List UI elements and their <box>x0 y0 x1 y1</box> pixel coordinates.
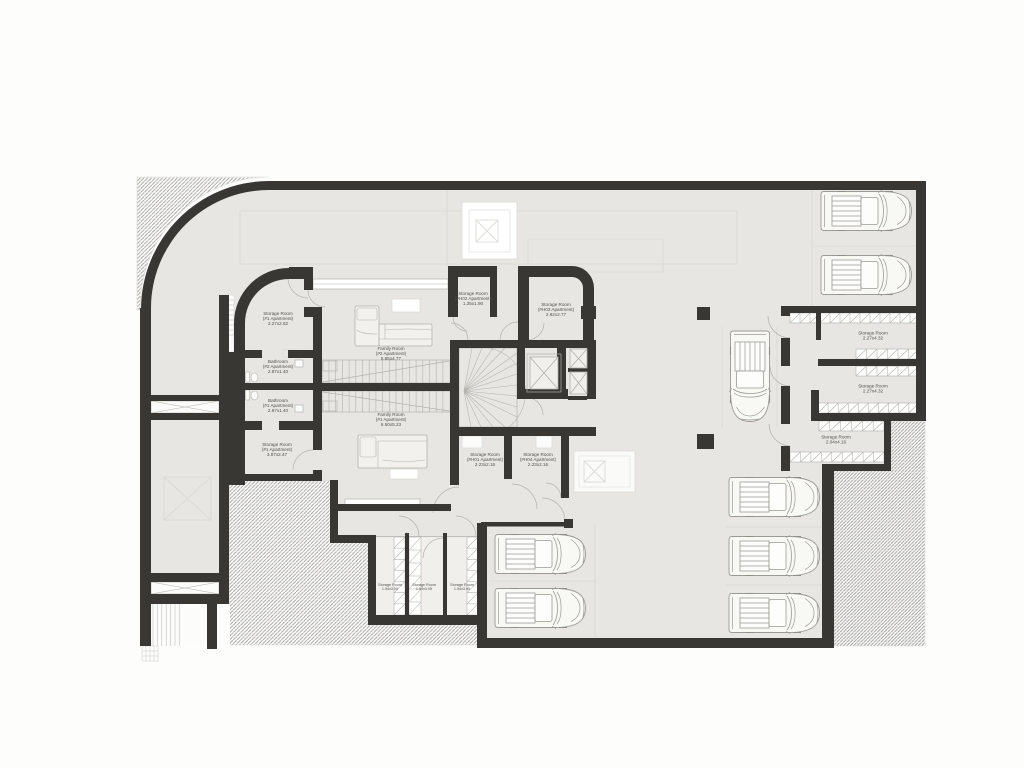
svg-text:2.23x2.16: 2.23x2.16 <box>475 462 496 467</box>
svg-text:2.27x4.32: 2.27x4.32 <box>863 388 884 393</box>
svg-text:3.27x2.62: 3.27x2.62 <box>268 321 289 326</box>
svg-text:2.04x4.16: 2.04x4.16 <box>826 439 847 444</box>
svg-text:3.87x2.47: 3.87x2.47 <box>267 452 288 457</box>
svg-text:2.82x2.77: 2.82x2.77 <box>546 312 567 317</box>
svg-text:2.23x2.16: 2.23x2.16 <box>528 462 549 467</box>
svg-text:2.87x1.40: 2.87x1.40 <box>268 408 289 413</box>
svg-text:2.27x4.32: 2.27x4.32 <box>863 335 884 340</box>
svg-text:6.50x5.23: 6.50x5.23 <box>381 422 402 427</box>
svg-text:1.35x1.90: 1.35x1.90 <box>463 301 484 306</box>
svg-text:2.87x1.40: 2.87x1.40 <box>268 369 289 374</box>
svg-text:1.54x3.05: 1.54x3.05 <box>416 587 432 591</box>
svg-text:1.54x3.05: 1.54x3.05 <box>454 587 470 591</box>
svg-text:1.54x3.05: 1.54x3.05 <box>382 587 398 591</box>
svg-text:5.85x4.77: 5.85x4.77 <box>381 356 402 361</box>
